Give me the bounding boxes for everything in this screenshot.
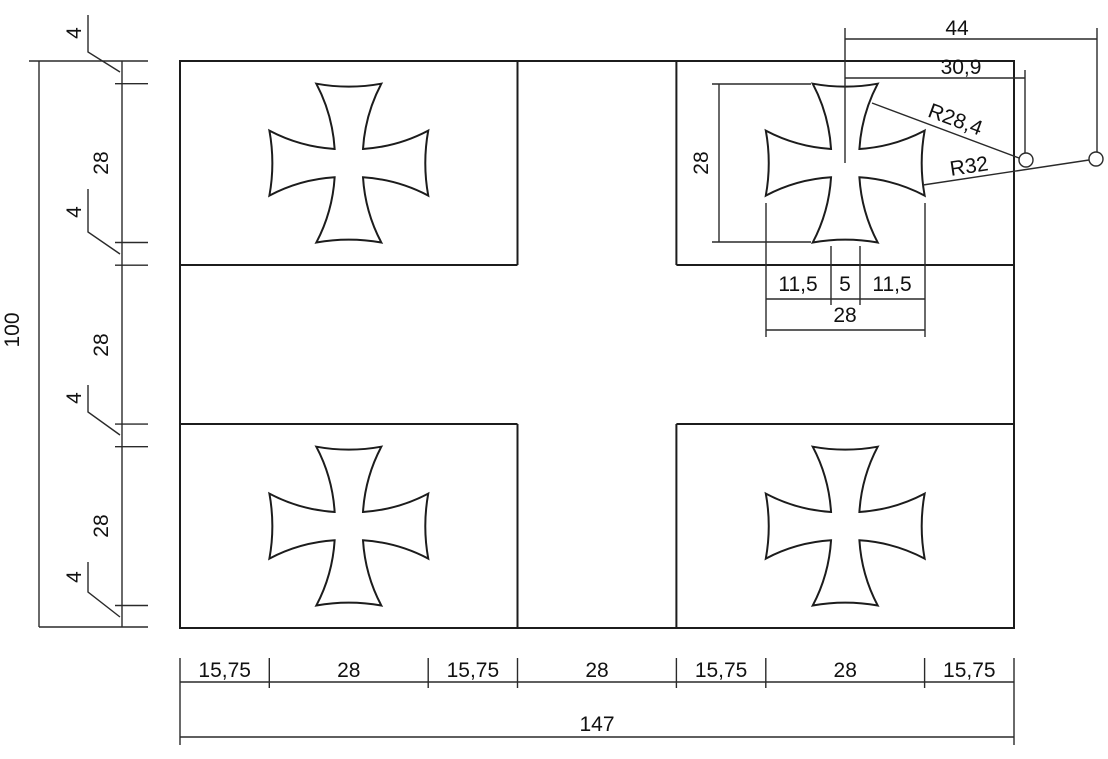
cross-bottom-right bbox=[766, 447, 925, 606]
dim-label-waist: 5 bbox=[839, 273, 851, 296]
dim-label-col: 15,75 bbox=[447, 659, 500, 682]
leader-line bbox=[88, 15, 120, 72]
dim-label-col: 28 bbox=[337, 659, 360, 682]
cross-top-left bbox=[269, 84, 428, 243]
dim-label-margin: 4 bbox=[63, 27, 86, 39]
left-dimension-chain: 100 4 28 4 28 4 28 4 bbox=[1, 15, 148, 627]
dim-label-margin: 4 bbox=[63, 571, 86, 583]
flag-outline bbox=[180, 61, 1014, 628]
dim-label-row: 28 bbox=[90, 151, 113, 174]
dim-label-col: 15,75 bbox=[943, 659, 996, 682]
arc-center-marker bbox=[1019, 153, 1033, 167]
dim-label-44: 44 bbox=[945, 17, 969, 40]
dim-label-overall-width: 147 bbox=[579, 713, 614, 736]
dim-label-col: 15,75 bbox=[695, 659, 748, 682]
dim-label-row: 28 bbox=[90, 333, 113, 356]
dim-label-col: 15,75 bbox=[198, 659, 251, 682]
flag-rectangle bbox=[180, 61, 1014, 628]
dim-label-col: 28 bbox=[834, 659, 857, 682]
dim-label-margin: 4 bbox=[63, 392, 86, 404]
bottom-dimension-chain: 15,75 28 15,75 28 15,75 28 15,75 147 bbox=[180, 658, 1014, 745]
dim-label-row: 28 bbox=[90, 514, 113, 537]
dim-label-waist: 11,5 bbox=[778, 273, 817, 296]
leader-line bbox=[88, 562, 120, 617]
leader-line bbox=[88, 189, 120, 254]
dim-label-waist: 11,5 bbox=[872, 273, 911, 296]
dim-label-margin: 4 bbox=[63, 206, 86, 218]
dim-label-30-9: 30,9 bbox=[941, 56, 982, 79]
dim-label-col: 28 bbox=[585, 659, 608, 682]
dim-label-cross-height: 28 bbox=[690, 151, 713, 174]
dim-label-cross-width: 28 bbox=[833, 304, 856, 327]
cross-bottom-left bbox=[269, 447, 428, 606]
arc-center-marker bbox=[1089, 152, 1103, 166]
cross-detail-dimensions: 28 44 30,9 R28,4 R32 11,5 5 11,5 28 bbox=[690, 17, 1103, 337]
drawing-page: 100 4 28 4 28 4 28 4 15,75 28 15,75 28 1… bbox=[0, 0, 1108, 759]
leader-line-r32 bbox=[923, 160, 1089, 185]
leader-line bbox=[88, 385, 120, 435]
technical-drawing-canvas: 100 4 28 4 28 4 28 4 15,75 28 15,75 28 1… bbox=[0, 0, 1108, 759]
dim-label-overall-height: 100 bbox=[1, 312, 24, 347]
cross-emblems bbox=[269, 84, 924, 606]
